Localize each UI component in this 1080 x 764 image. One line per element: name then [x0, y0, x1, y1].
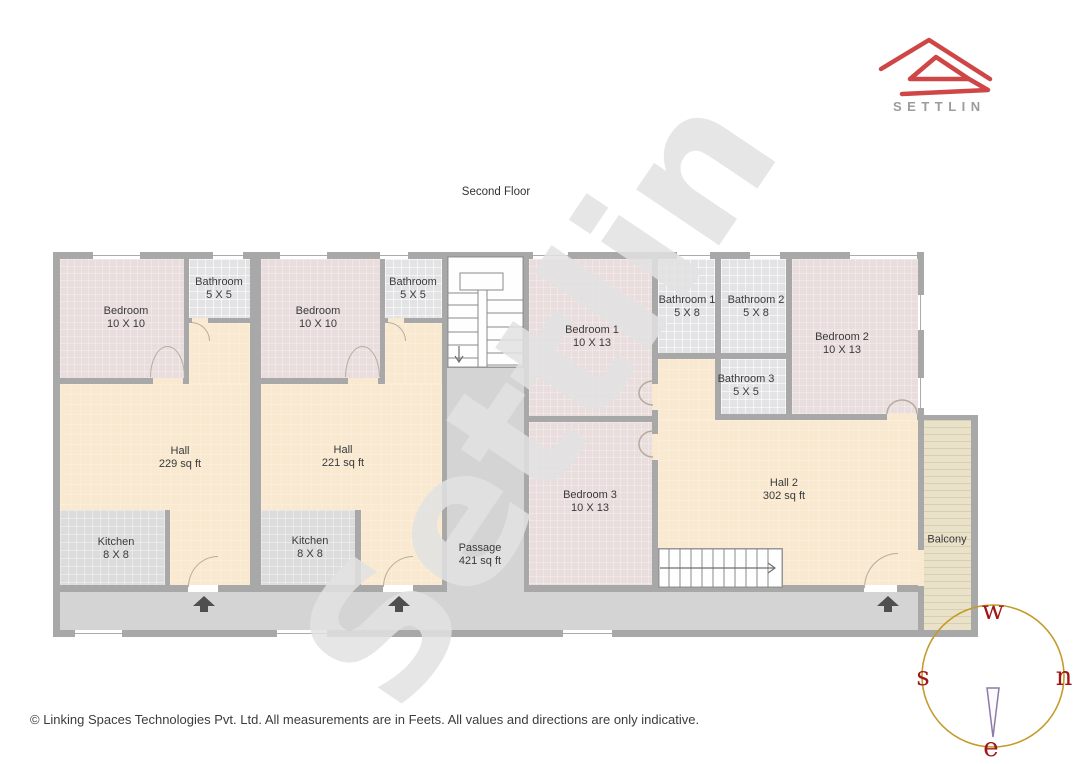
brand-wordmark: SETTLIN: [893, 99, 1003, 114]
room-label-balcony: Balcony: [927, 534, 966, 547]
compass-north-label: n: [1056, 662, 1073, 692]
room-label-hall-unit1: Hall229 sq ft: [159, 445, 201, 471]
door-arc: [624, 380, 654, 406]
entrance-arrow-icon: [388, 596, 410, 613]
staircase-straight: [658, 548, 783, 588]
entrance-arrow-icon: [193, 596, 215, 613]
window-marker: [533, 252, 568, 259]
room-label-bathroom-3: Bathroom 35 X 5: [718, 373, 775, 399]
window-marker: [213, 252, 243, 259]
compass-south-label: s: [916, 662, 929, 692]
window-marker: [750, 252, 780, 259]
window-marker: [75, 630, 122, 637]
window-marker: [380, 252, 408, 259]
window-marker: [918, 378, 924, 408]
window-marker: [277, 630, 327, 637]
room-label-bedroom-1: Bedroom 110 X 13: [565, 324, 619, 350]
window-marker: [563, 630, 612, 637]
room-label-kitchen-unit1: Kitchen8 X 8: [98, 536, 135, 562]
plan-title: Second Floor: [462, 186, 530, 198]
room-label-bathroom-unit2: Bathroom5 X 5: [389, 276, 437, 302]
copyright-text: © Linking Spaces Technologies Pvt. Ltd. …: [30, 712, 699, 727]
room-label-hall-2: Hall 2302 sq ft: [763, 477, 805, 503]
room-hall2-upper: [658, 359, 715, 420]
room-label-hall-unit2: Hall221 sq ft: [322, 444, 364, 470]
room-label-bedroom-unit1: Bedroom10 X 10: [104, 305, 149, 331]
door-opening: [348, 378, 378, 384]
room-label-bathroom-2: Bathroom 25 X 8: [728, 294, 785, 320]
window-marker: [850, 252, 917, 259]
room-hall-unit1: [60, 384, 250, 510]
door-arc: [624, 430, 654, 458]
room-passage-corridor: [60, 592, 918, 630]
room-label-bathroom-unit1: Bathroom5 X 5: [195, 276, 243, 302]
floor-plan-page: { "header": { "brand": "SETTLIN" }, "tit…: [0, 0, 1080, 764]
room-label-bedroom-2: Bedroom 210 X 13: [815, 331, 869, 357]
settlin-logo-icon: [876, 28, 996, 98]
room-label-passage: Passage421 sq ft: [459, 542, 502, 568]
room-label-kitchen-unit2: Kitchen8 X 8: [292, 535, 329, 561]
compass-east-label: e: [983, 733, 998, 761]
window-marker: [93, 252, 140, 259]
compass-rose-icon: w s n e: [915, 597, 1075, 761]
staircase-switchback: [447, 256, 524, 368]
room-label-bedroom-3: Bedroom 310 X 13: [563, 489, 617, 515]
door-arc: [886, 385, 918, 415]
entrance-arrow-icon: [877, 596, 899, 613]
compass-west-label: w: [982, 597, 1004, 626]
door-opening: [918, 550, 924, 586]
door-opening: [153, 378, 183, 384]
room-label-bedroom-unit2: Bedroom10 X 10: [296, 305, 341, 331]
window-marker: [677, 252, 710, 259]
room-label-bathroom-1: Bathroom 15 X 8: [659, 294, 716, 320]
window-marker: [918, 295, 924, 330]
window-marker: [280, 252, 327, 259]
